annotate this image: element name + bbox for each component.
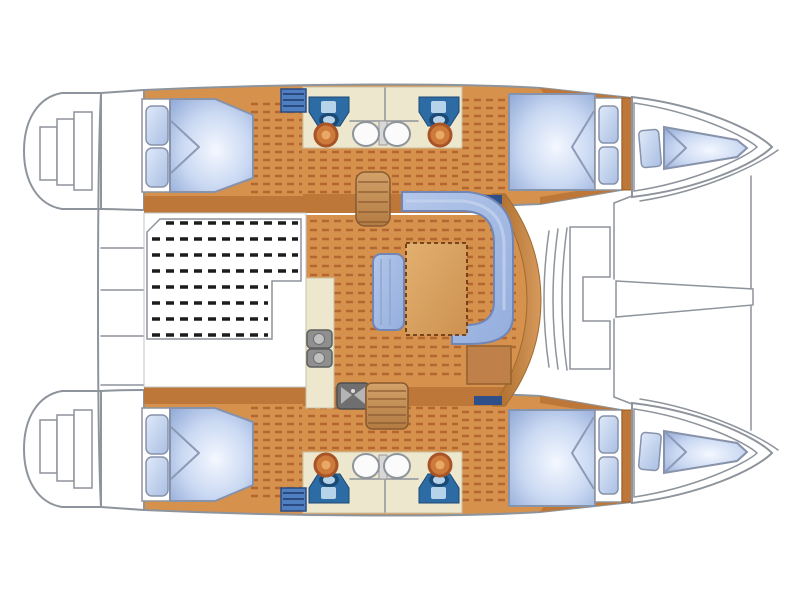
companionway-stairs-starboard <box>366 383 408 429</box>
deck-hatch-starboard <box>281 488 306 511</box>
foredeck-seat-curve <box>553 229 558 369</box>
foredeck-seat-curve <box>562 228 567 370</box>
starboard-forward-cabin-bed <box>509 410 632 506</box>
galley-sink <box>337 383 369 409</box>
starboard-shower-basin <box>384 454 410 478</box>
port-bow-berth <box>632 97 778 201</box>
foredeck-seat-curve <box>544 231 549 367</box>
salon-sideboard <box>467 346 511 384</box>
starboard-forward-sink <box>429 454 451 476</box>
bowsprit-beam <box>616 281 753 317</box>
starboard-aft-sink <box>315 454 337 476</box>
galley-stove <box>307 330 332 367</box>
port-heads <box>303 87 462 148</box>
foredeck <box>544 176 753 430</box>
stern-steps-starboard <box>24 391 101 507</box>
companionway-stairs-port <box>356 172 390 226</box>
stern-steps-port <box>24 93 101 209</box>
aft-cockpit <box>144 213 306 387</box>
deck-hatch-port <box>281 89 306 112</box>
port-shower-basin <box>384 122 410 146</box>
mast-step-locker <box>570 227 610 369</box>
catamaran-floor-plan <box>0 0 800 600</box>
port-shower-basin <box>353 122 379 146</box>
starboard-heads <box>303 452 462 513</box>
port-forward-sink <box>429 124 451 146</box>
bridgedeck <box>144 172 541 429</box>
starboard-shower-basin <box>353 454 379 478</box>
port-forward-cabin-bed <box>509 94 632 190</box>
port-aft-sink <box>315 124 337 146</box>
salon-bench <box>373 254 404 330</box>
starboard-bow-berth <box>632 399 778 503</box>
starboard-aft-cabin-bed <box>142 408 253 501</box>
salon-table <box>406 243 467 335</box>
catamaran-floor-plan-page <box>0 0 800 600</box>
aft-crossbeam-lines <box>98 93 144 507</box>
port-aft-cabin-bed <box>142 99 253 192</box>
salon-door-step <box>474 396 502 405</box>
